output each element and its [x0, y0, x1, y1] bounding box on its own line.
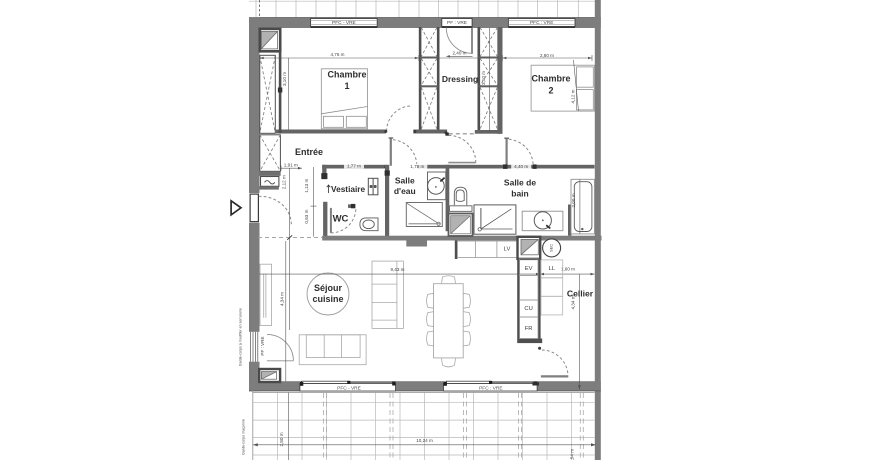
svg-text:LV: LV — [504, 247, 511, 253]
svg-text:LL: LL — [549, 266, 556, 272]
svg-text:Garde-corps à modifier en serr: Garde-corps à modifier en serrurerie — [239, 308, 243, 366]
svg-text:d'eau: d'eau — [394, 186, 416, 196]
svg-text:1,77 m: 1,77 m — [347, 164, 361, 169]
svg-text:1,13 m: 1,13 m — [304, 179, 309, 193]
svg-text:FR: FR — [525, 326, 533, 332]
svg-text:PFC - VRE: PFC - VRE — [337, 386, 361, 392]
svg-text:Chambre: Chambre — [531, 74, 570, 84]
svg-text:1,54 m: 1,54 m — [570, 449, 575, 460]
svg-text:Entrée: Entrée — [295, 147, 323, 157]
svg-text:1,78 m: 1,78 m — [410, 164, 424, 169]
svg-text:PF : VRE: PF : VRE — [447, 20, 467, 26]
svg-text:Salle: Salle — [395, 176, 415, 186]
svg-text:4,34 m: 4,34 m — [571, 295, 576, 309]
svg-text:Chambre: Chambre — [327, 70, 366, 80]
svg-text:Séjour: Séjour — [314, 283, 343, 293]
svg-text:cuisine: cuisine — [312, 294, 343, 304]
svg-text:2,12 m: 2,12 m — [282, 175, 287, 189]
svg-text:WC: WC — [333, 214, 349, 225]
svg-text:SEC: SEC — [549, 244, 554, 252]
svg-text:EV: EV — [525, 266, 533, 272]
svg-text:bain: bain — [511, 189, 528, 199]
svg-text:1,91 m: 1,91 m — [284, 163, 298, 168]
svg-text:4,34 m: 4,34 m — [280, 292, 285, 306]
svg-text:3,10 m: 3,10 m — [282, 72, 287, 86]
svg-text:PF : VRE: PF : VRE — [260, 336, 265, 355]
svg-text:PFC : VRE: PFC : VRE — [479, 386, 502, 392]
svg-text:Dressing: Dressing — [442, 74, 478, 84]
svg-text:2,80 m: 2,80 m — [540, 53, 554, 58]
svg-text:Garde-corps maçonné: Garde-corps maçonné — [242, 419, 246, 455]
svg-text:CU: CU — [524, 306, 532, 312]
svg-text:2,40 m: 2,40 m — [452, 51, 466, 56]
svg-text:4,76 m: 4,76 m — [330, 52, 344, 57]
svg-text:0,63 m: 0,63 m — [304, 209, 309, 223]
svg-text:9,43 m: 9,43 m — [390, 267, 404, 272]
svg-text:2,00 m: 2,00 m — [571, 193, 576, 207]
svg-text:PFC - VRE: PFC - VRE — [332, 20, 356, 26]
svg-text:Vestiaire: Vestiaire — [331, 184, 366, 194]
svg-text:PFC : VRE: PFC : VRE — [530, 20, 553, 26]
svg-text:2: 2 — [548, 86, 553, 96]
svg-text:4,40 m: 4,40 m — [514, 164, 528, 169]
svg-text:1: 1 — [344, 81, 349, 91]
svg-text:1,60 m: 1,60 m — [561, 266, 575, 271]
svg-text:3,10 m: 3,10 m — [481, 71, 486, 85]
svg-text:4,12 m: 4,12 m — [571, 89, 576, 103]
svg-text:Salle de: Salle de — [504, 178, 536, 188]
svg-text:10,24 m: 10,24 m — [416, 438, 433, 443]
svg-text:2,80 m: 2,80 m — [279, 432, 284, 446]
